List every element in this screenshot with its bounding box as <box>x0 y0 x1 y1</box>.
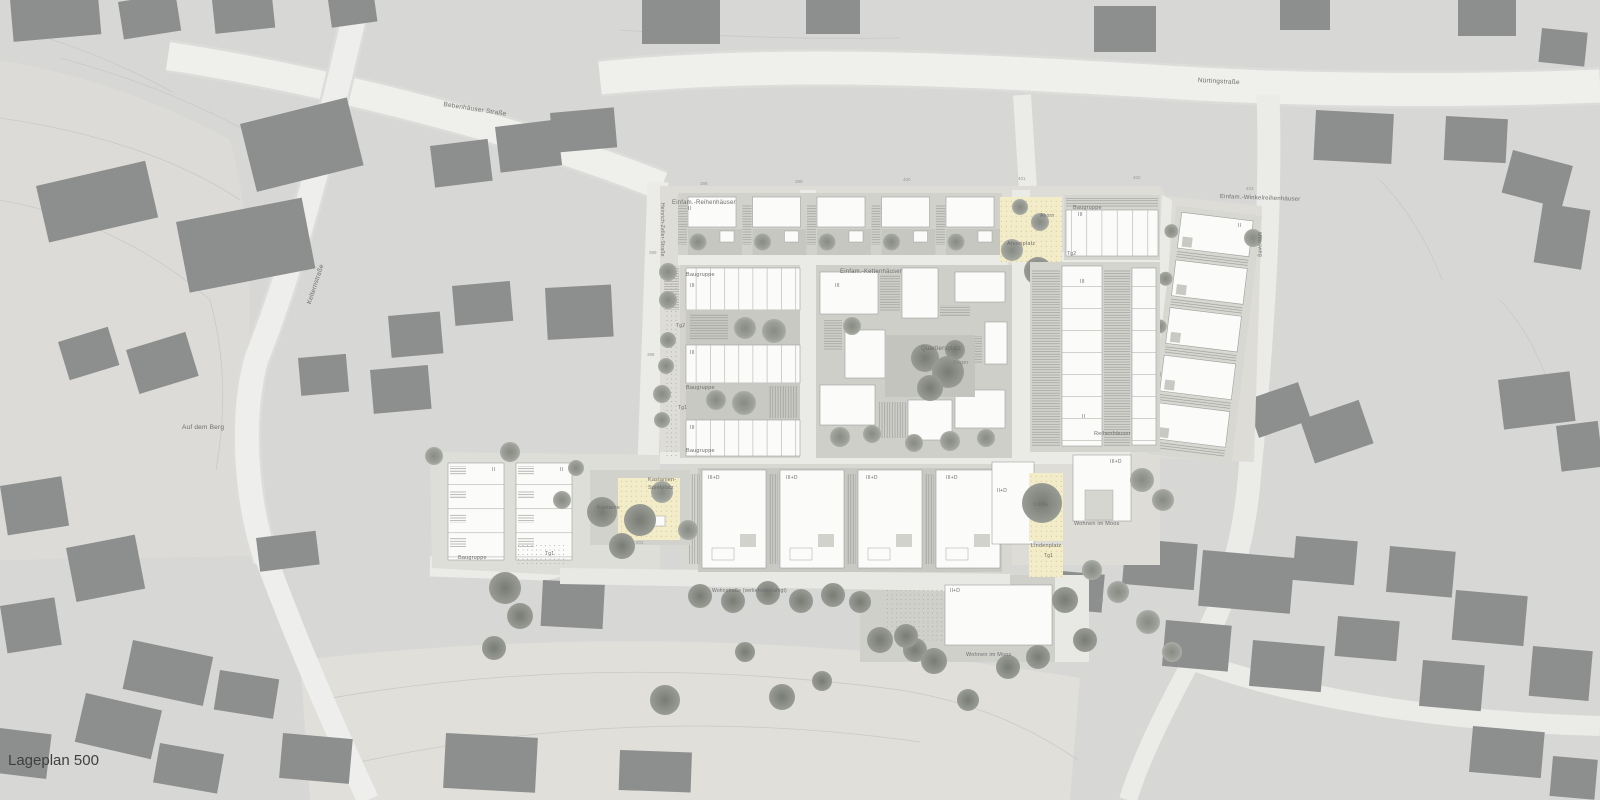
area-label-auf-dem-berg: Auf dem Berg <box>182 424 224 431</box>
area-label-reihenhaeuser-top: Einfam.-Reihenhäuser <box>672 200 736 207</box>
floor-label-iii-1: III <box>690 284 695 290</box>
elevation-398-left: 398 <box>647 352 655 357</box>
plaza-label-ahornplatz: Ahornplatz <box>1007 241 1035 247</box>
area-label-baugruppe-4: Baugruppe <box>1073 205 1102 211</box>
street-label-moosweg: Moosweg <box>1256 232 1263 257</box>
floor-label-ii-5: II <box>1238 224 1241 230</box>
garage-label-tg1-c: Tg1 <box>1044 554 1053 560</box>
tree-label-linde: Linde <box>1034 502 1048 508</box>
elevation-401-bottom: 401 <box>636 540 644 545</box>
elevation-399-left: 399 <box>649 250 657 255</box>
garage-label-tg1-b: Tg1 <box>678 406 687 412</box>
plan-title: Lageplan 500 <box>8 752 99 769</box>
floor-label-ii-4: II <box>688 207 691 213</box>
garage-label-tg2-b: Tg2 <box>1067 252 1076 258</box>
area-label-kettenhaeuser: Einfam.-Kettenhäuser <box>840 269 902 276</box>
elevation-400: 400 <box>903 177 911 182</box>
plaza-label-kastanien-line2: Spielplatz <box>648 485 674 491</box>
elevation-399: 399 <box>795 179 803 184</box>
plaza-label-kastanien-line1: Kastanien- <box>648 477 676 483</box>
area-label-baugruppe-2: Baugruppe <box>686 385 715 391</box>
floor-label-ii-d-2: II+D <box>950 589 960 595</box>
floor-label-ii-3: II <box>1082 415 1085 421</box>
floor-label-ii-2: II <box>560 468 563 474</box>
floor-label-iii-4: III <box>835 284 840 290</box>
area-label-reihenhaeuser-right: Reihenhäuser <box>1094 431 1131 437</box>
elevation-402-bottom: 402 <box>1096 598 1104 603</box>
floor-label-iii-d-2: III+D <box>786 476 798 482</box>
floor-label-ii-1: II <box>492 468 495 474</box>
plaza-label-lindenplatz: Lindenplatz <box>1031 543 1061 549</box>
area-label-anger: Anger <box>953 360 969 366</box>
floor-label-iii-d-1: III+D <box>708 476 720 482</box>
tree-label-ahorn: Ahorn <box>1040 214 1054 220</box>
floor-label-iii-d-4: III+D <box>946 476 958 482</box>
elevation-398: 398 <box>700 181 708 186</box>
tree-label-kastanie: Kastanie <box>597 505 620 511</box>
block-kettenhaeuser <box>816 265 1012 458</box>
area-label-quartiersplatz: Quartiersplatz <box>921 346 961 353</box>
area-label-baugruppe-3: Baugruppe <box>686 448 715 454</box>
block-slabs-bottom <box>688 468 1002 572</box>
area-label-baugruppe-1: Baugruppe <box>686 272 715 278</box>
site-plan: Lageplan 500 Bebenhäuser Straße Nürtings… <box>0 0 1600 800</box>
elevation-402: 402 <box>1133 175 1141 180</box>
floor-label-iii-3: III <box>690 426 695 432</box>
area-label-wohnen-im-moos-2: Wohnen im Moos <box>966 652 1012 658</box>
floor-label-iii-d-5: III+D <box>1110 460 1122 466</box>
garage-label-tg1-a: Tg1 <box>545 552 554 558</box>
floor-label-iii-6: III <box>1078 213 1083 219</box>
floor-label-ii-d-1: II+D <box>997 489 1007 495</box>
garage-label-tg2-a: Tg2 <box>676 324 685 330</box>
street-label-wohnstrasse: Wohnstraße (verkehrsberuhigt) <box>712 589 787 595</box>
block-baugruppe-left <box>664 265 800 458</box>
floor-label-iii-5: III <box>1080 280 1085 286</box>
area-label-wohnen-im-moos-1: Wohnen im Moos <box>1074 521 1120 527</box>
area-label-baugruppe-5: Baugruppe <box>458 555 487 561</box>
site-plan-map <box>0 0 1600 800</box>
block-reihenhaeuser-right <box>1030 262 1160 452</box>
floor-label-iii-d-3: III+D <box>866 476 878 482</box>
elevation-401: 401 <box>1018 176 1026 181</box>
street-label-heinrich-zeller: Heinrich-Zeller-Straße <box>659 203 665 257</box>
elevation-403: 403 <box>1246 186 1254 191</box>
floor-label-iii-2: III <box>690 351 695 357</box>
